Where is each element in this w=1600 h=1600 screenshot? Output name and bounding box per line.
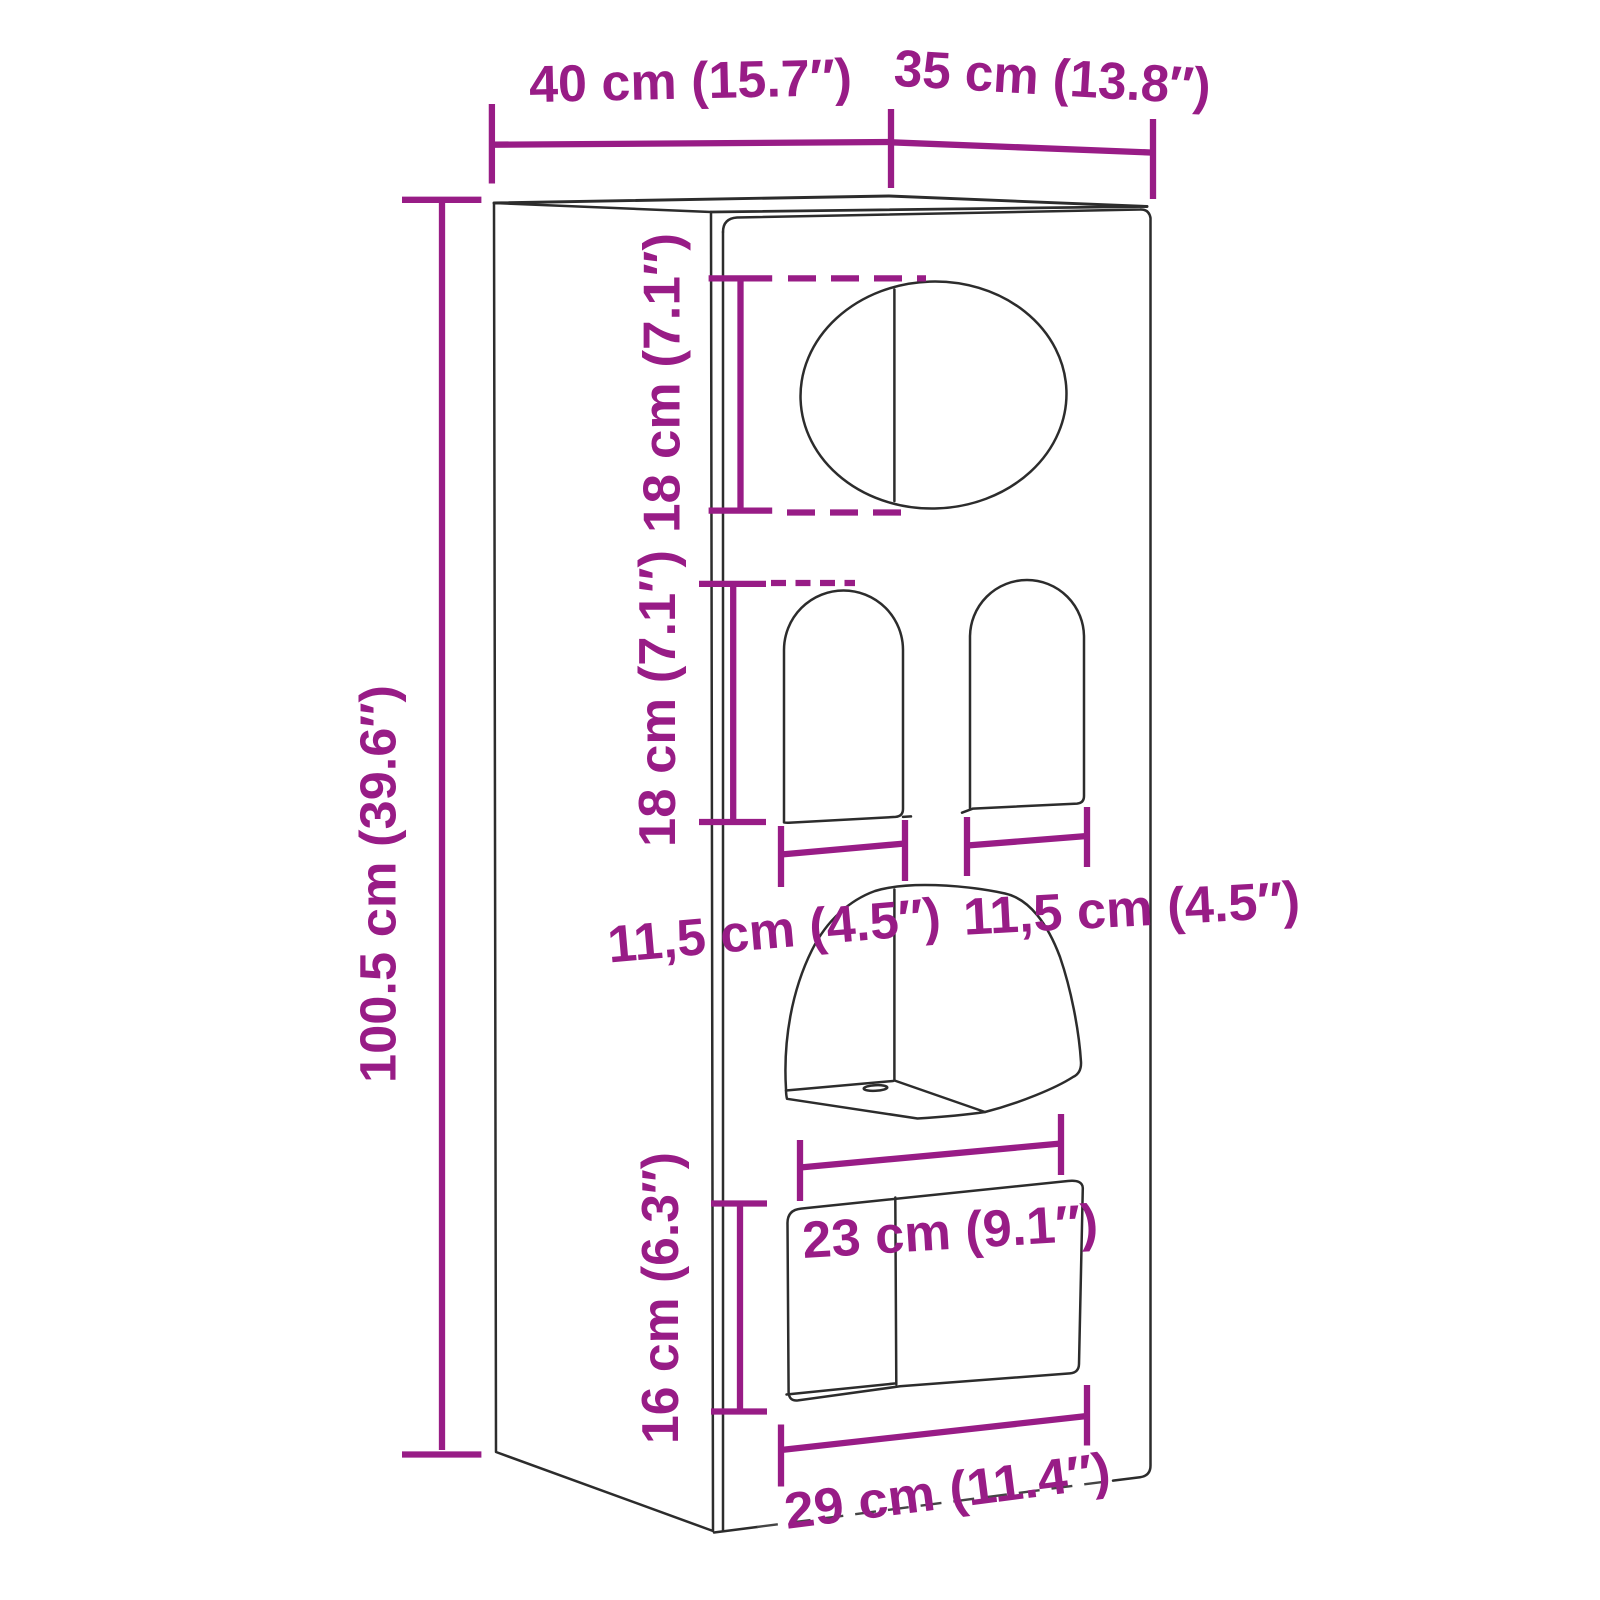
svg-text:40 cm (15.7″): 40 cm (15.7″) [528,49,852,114]
svg-text:100.5 cm (39.6″): 100.5 cm (39.6″) [350,685,407,1083]
svg-text:16 cm (6.3″): 16 cm (6.3″) [632,1152,690,1444]
svg-text:18 cm (7.1″): 18 cm (7.1″) [629,550,687,847]
svg-text:18 cm (7.1″): 18 cm (7.1″) [634,233,692,533]
